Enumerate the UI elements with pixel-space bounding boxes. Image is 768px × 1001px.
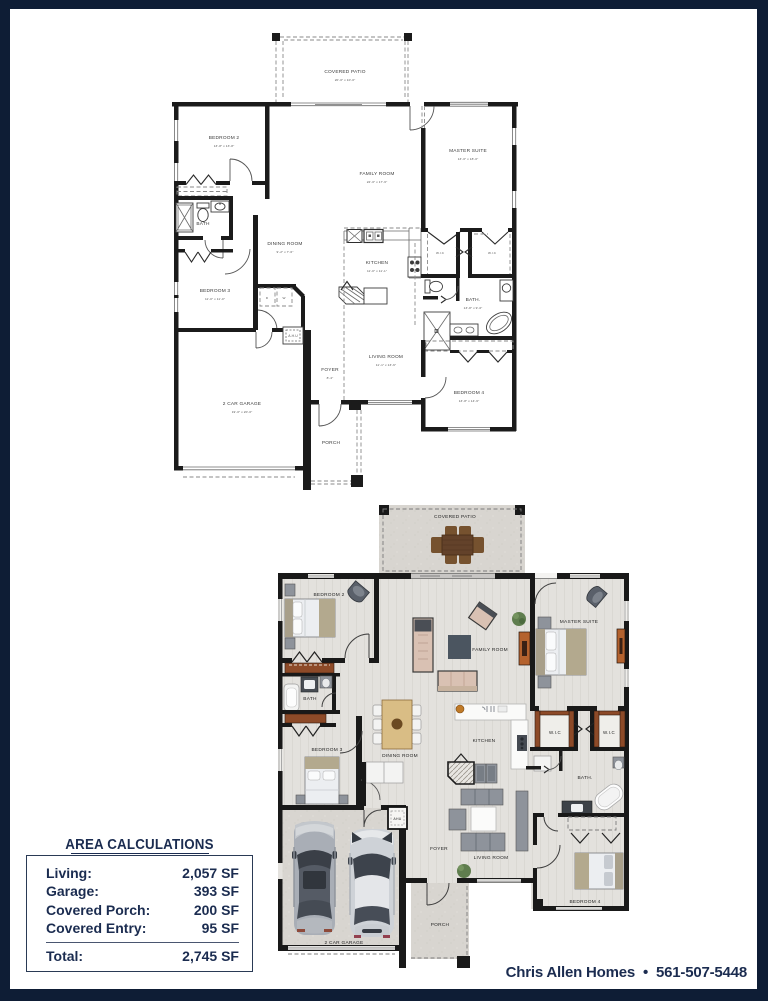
svg-text:DINING ROOM: DINING ROOM (382, 753, 418, 759)
svg-text:13'-8" x 9'-0": 13'-8" x 9'-0" (464, 306, 483, 310)
svg-text:BEDROOM 3: BEDROOM 3 (311, 747, 342, 753)
svg-text:BATH: BATH (196, 221, 210, 227)
svg-text:PORCH: PORCH (431, 922, 450, 928)
svg-text:W.I.C: W.I.C (436, 251, 445, 255)
svg-text:19'-0" x 20'-0": 19'-0" x 20'-0" (232, 410, 253, 414)
svg-text:LIVING ROOM: LIVING ROOM (474, 855, 509, 861)
svg-text:2 CAR GARAGE: 2 CAR GARAGE (223, 401, 261, 407)
svg-text:BEDROOM 4: BEDROOM 4 (454, 390, 485, 396)
svg-text:8'-4": 8'-4" (327, 376, 334, 380)
svg-text:11'-1" x 13'-6": 11'-1" x 13'-6" (376, 363, 396, 367)
svg-text:BEDROOM 2: BEDROOM 2 (209, 135, 240, 141)
svg-text:KITCHEN: KITCHEN (473, 738, 496, 744)
svg-text:22'-0" x 17'-6": 22'-0" x 17'-6" (367, 180, 388, 184)
svg-text:FOYER: FOYER (430, 846, 448, 852)
svg-text:BEDROOM 3: BEDROOM 3 (200, 288, 231, 294)
svg-text:PORCH: PORCH (322, 440, 341, 446)
svg-text:W: W (282, 296, 285, 300)
svg-text:11'-0" x 11'-1": 11'-0" x 11'-1" (367, 269, 387, 273)
svg-text:W.I.C: W.I.C (603, 730, 615, 735)
svg-text:13'-0" x 18'-0": 13'-0" x 18'-0" (458, 157, 479, 161)
svg-text:FAMILY ROOM: FAMILY ROOM (472, 647, 508, 653)
svg-text:KITCHEN: KITCHEN (366, 260, 389, 266)
svg-text:MASTER SUITE: MASTER SUITE (560, 619, 598, 625)
svg-text:W.I.C: W.I.C (549, 730, 561, 735)
svg-text:COVERED PATIO: COVERED PATIO (324, 69, 365, 75)
svg-text:COVERED PATIO: COVERED PATIO (434, 514, 476, 520)
svg-text:BATH.: BATH. (466, 297, 481, 303)
svg-text:BATH.: BATH. (577, 775, 592, 781)
svg-text:20'-0" x 10'-0": 20'-0" x 10'-0" (335, 78, 356, 82)
svg-text:W.I.C: W.I.C (488, 251, 497, 255)
svg-text:11'-0" x 11'-0": 11'-0" x 11'-0" (205, 297, 225, 301)
svg-text:BEDROOM 2: BEDROOM 2 (313, 592, 344, 598)
svg-text:9'-2" x 7'-6": 9'-2" x 7'-6" (277, 250, 294, 254)
svg-text:DINING ROOM: DINING ROOM (267, 241, 302, 247)
svg-text:13'-8" x 14'-6": 13'-8" x 14'-6" (459, 399, 480, 403)
svg-text:FOYER: FOYER (321, 367, 339, 373)
svg-text:13'-8" x 13'-8": 13'-8" x 13'-8" (214, 144, 235, 148)
svg-text:AHU: AHU (393, 817, 401, 821)
svg-text:LIVING ROOM: LIVING ROOM (369, 354, 403, 360)
svg-text:BATH: BATH (303, 696, 317, 702)
svg-text:FAMILY ROOM: FAMILY ROOM (359, 171, 394, 177)
svg-text:A.H.U: A.H.U (288, 334, 298, 338)
svg-text:D: D (266, 296, 269, 300)
svg-text:MASTER SUITE: MASTER SUITE (449, 148, 487, 154)
svg-text:BEDROOM 4: BEDROOM 4 (569, 899, 600, 905)
